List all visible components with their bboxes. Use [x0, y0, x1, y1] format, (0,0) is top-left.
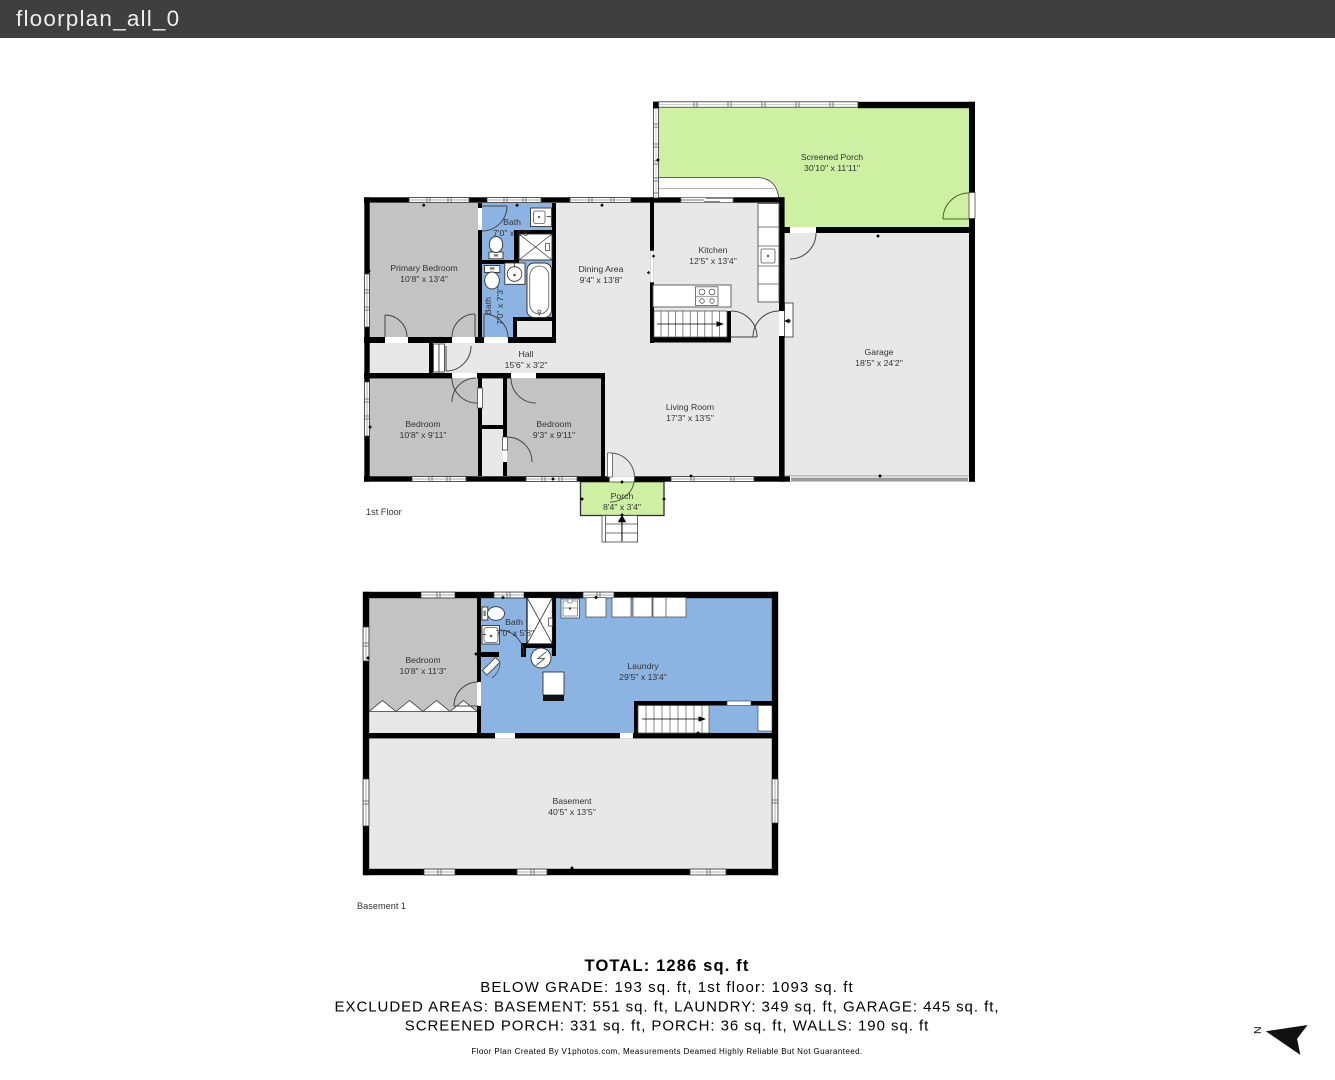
svg-text:Porch: Porch — [611, 491, 634, 501]
svg-text:30'10" x 11'11": 30'10" x 11'11" — [804, 163, 860, 173]
svg-text:40'5" x 13'5": 40'5" x 13'5" — [548, 807, 596, 817]
svg-text:29'5" x 13'4": 29'5" x 13'4" — [619, 672, 667, 682]
svg-text:8'4" x 3'4": 8'4" x 3'4" — [603, 502, 641, 512]
svg-text:Floor Plan Created By V1photos: Floor Plan Created By V1photos.com, Meas… — [471, 1047, 862, 1056]
svg-text:Dining Area: Dining Area — [579, 264, 624, 274]
svg-text:Bedroom: Bedroom — [405, 419, 440, 429]
svg-text:floorplan_all_0: floorplan_all_0 — [16, 6, 180, 31]
svg-text:7'0" x 4'8": 7'0" x 4'8" — [493, 228, 531, 238]
svg-text:EXCLUDED AREAS: BASEMENT: 551: EXCLUDED AREAS: BASEMENT: 551 sq. ft, LA… — [335, 999, 1000, 1016]
svg-text:Primary Bedroom: Primary Bedroom — [390, 263, 458, 273]
svg-text:Basement: Basement — [552, 796, 592, 806]
svg-text:17'3" x 13'5": 17'3" x 13'5" — [666, 413, 714, 423]
svg-text:Bath: Bath — [503, 217, 521, 227]
svg-text:10'8" x 9'11": 10'8" x 9'11" — [400, 430, 447, 440]
svg-text:1st Floor: 1st Floor — [366, 507, 402, 517]
svg-text:BELOW GRADE: 193 sq. ft, 1st f: BELOW GRADE: 193 sq. ft, 1st floor: 1093… — [480, 979, 854, 996]
svg-text:9'4" x 13'8": 9'4" x 13'8" — [580, 275, 623, 285]
svg-text:Kitchen: Kitchen — [699, 245, 728, 255]
svg-text:12'5" x 13'4": 12'5" x 13'4" — [689, 256, 737, 266]
svg-text:SCREENED PORCH: 331 sq. ft, PO: SCREENED PORCH: 331 sq. ft, PORCH: 36 sq… — [405, 1018, 929, 1035]
svg-text:7'0" x 7'3": 7'0" x 7'3" — [495, 287, 505, 325]
svg-text:N: N — [1252, 1026, 1264, 1034]
svg-text:Garage: Garage — [865, 347, 894, 357]
svg-text:Bath: Bath — [483, 297, 493, 315]
svg-text:Laundry: Laundry — [627, 661, 659, 671]
svg-text:Basement 1: Basement 1 — [357, 901, 406, 911]
svg-text:9'3" x 9'11": 9'3" x 9'11" — [533, 430, 575, 440]
svg-text:Bedroom: Bedroom — [536, 419, 571, 429]
svg-text:15'6" x 3'2": 15'6" x 3'2" — [505, 360, 548, 370]
svg-text:Living Room: Living Room — [666, 402, 714, 412]
svg-text:10'8" x 13'4": 10'8" x 13'4" — [400, 274, 448, 284]
svg-text:Bath: Bath — [505, 617, 523, 627]
svg-text:10'8" x 11'3": 10'8" x 11'3" — [400, 666, 447, 676]
svg-text:18'5" x 24'2": 18'5" x 24'2" — [855, 358, 903, 368]
svg-text:Bedroom: Bedroom — [405, 655, 440, 665]
svg-text:TOTAL: 1286 sq. ft: TOTAL: 1286 sq. ft — [585, 957, 750, 975]
svg-text:Screened Porch: Screened Porch — [801, 152, 863, 162]
svg-text:Hall: Hall — [519, 349, 534, 359]
svg-text:7'0" x 5'8": 7'0" x 5'8" — [496, 628, 534, 638]
